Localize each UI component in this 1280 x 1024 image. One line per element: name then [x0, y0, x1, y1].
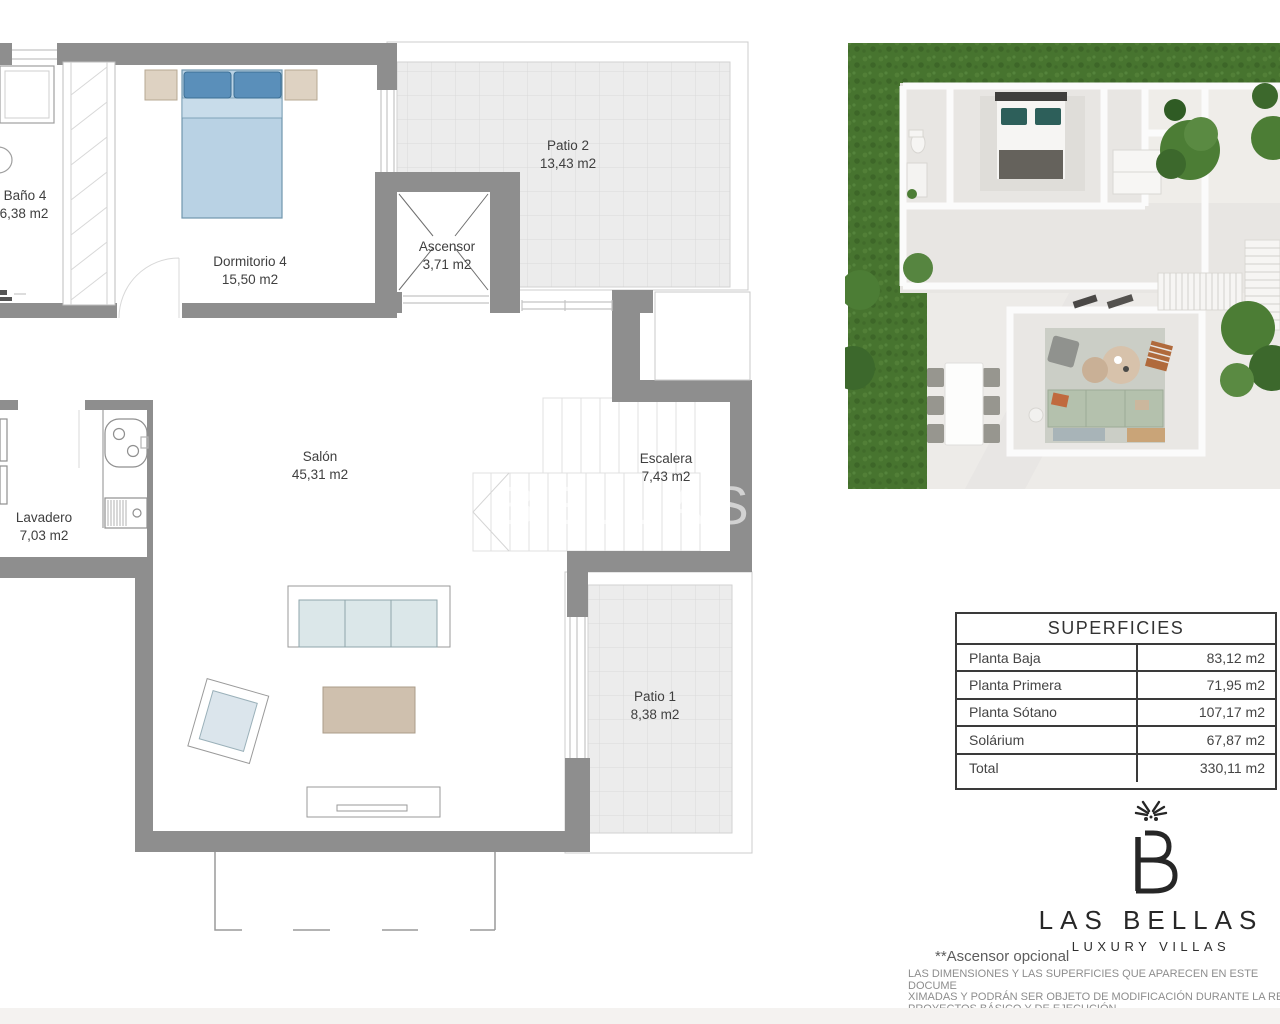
bed [145, 70, 317, 218]
row-value: 67,87 m2 [1138, 727, 1275, 752]
disclaimer-line: LAS DIMENSIONES Y LAS SUPERFICIES QUE AP… [908, 969, 1280, 992]
watermark: LAS BELLAS [346, 476, 757, 536]
brand-logo: B LAS BELLAS LUXURY VILLAS [1038, 797, 1264, 954]
row-label: Planta Sótano [957, 700, 1138, 725]
page-bottom-strip [0, 1008, 1280, 1024]
table-row: Planta Primera 71,95 m2 [957, 672, 1275, 699]
row-value: 107,17 m2 [1138, 700, 1275, 725]
row-label: Planta Baja [957, 645, 1138, 670]
row-value: 71,95 m2 [1138, 672, 1275, 697]
area-escalera: 7,43 m2 [642, 469, 691, 484]
label-patio2: Patio 2 [547, 138, 589, 153]
row-label: Planta Primera [957, 672, 1138, 697]
coffee-table [323, 687, 415, 733]
render-closet [1113, 150, 1161, 194]
palm-fronds-icon [1119, 797, 1183, 823]
render-dining-set [927, 363, 1000, 445]
table-row: Planta Baja 83,12 m2 [957, 645, 1275, 672]
wardrobe [63, 62, 115, 305]
bathtub [0, 66, 54, 123]
label-bano4: Baño 4 [4, 188, 47, 203]
area-ascensor: 3,71 m2 [423, 257, 472, 272]
row-label: Total [957, 755, 1138, 782]
disclaimer-line: XIMADAS Y PODRÁN SER OBJETO DE MODIFICAC… [908, 992, 1280, 1004]
render-bedroom [980, 92, 1085, 191]
label-lavadero: Lavadero [16, 510, 72, 525]
surfaces-table: SUPERFICIES Planta Baja 83,12 m2 Planta … [955, 612, 1277, 790]
table-row: Planta Sótano 107,17 m2 [957, 700, 1275, 727]
render-3d-top-view [845, 38, 1280, 493]
bedroom-door-arc [119, 258, 179, 318]
label-salon: Salón [303, 449, 338, 464]
row-label: Solárium [957, 727, 1138, 752]
area-bano4: 6,38 m2 [0, 206, 48, 221]
elevator-note: **Ascensor opcional [935, 948, 1069, 965]
row-value: 330,11 m2 [1138, 755, 1275, 782]
tv-stand [307, 787, 440, 817]
row-value: 83,12 m2 [1138, 645, 1275, 670]
area-patio1: 8,38 m2 [631, 707, 680, 722]
area-lavadero: 7,03 m2 [20, 528, 69, 543]
area-patio2: 13,43 m2 [540, 156, 596, 171]
area-dormitorio4: 15,50 m2 [222, 272, 278, 287]
wall-marks [0, 290, 26, 301]
armchair [188, 679, 269, 764]
label-dormitorio4: Dormitorio 4 [213, 254, 287, 269]
label-patio1: Patio 1 [634, 689, 676, 704]
render-living-room [1029, 328, 1173, 443]
label-ascensor: Ascensor [419, 239, 476, 254]
floorplan-2d: LAS BELLAS Baño 4 6,38 m2 Dormitorio 4 1… [0, 0, 845, 950]
brand-monogram: B [1038, 828, 1264, 901]
brand-tagline: LUXURY VILLAS [1038, 939, 1264, 954]
stair-void [655, 292, 750, 380]
surfaces-table-title: SUPERFICIES [957, 614, 1275, 645]
sofa [288, 586, 450, 647]
table-row: Solárium 67,87 m2 [957, 727, 1275, 754]
brand-name: LAS BELLAS [1038, 905, 1264, 936]
label-escalera: Escalera [640, 451, 693, 466]
table-row: Total 330,11 m2 [957, 755, 1275, 782]
porch-outline [215, 852, 495, 930]
area-salon: 45,31 m2 [292, 467, 348, 482]
toilet [0, 147, 12, 173]
